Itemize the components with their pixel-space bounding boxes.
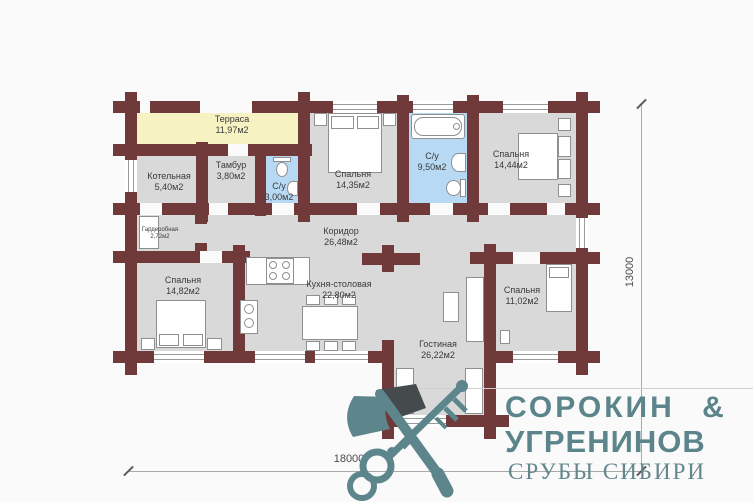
- door-opening: [357, 203, 380, 215]
- room-name: Терраса: [215, 114, 250, 124]
- room-area: 11,02м2: [505, 296, 538, 306]
- room-label-bedroom-2: Спальня 14,44м2: [493, 149, 529, 171]
- burner: [269, 272, 277, 280]
- room-area: 11,97м2: [215, 125, 248, 135]
- terrace-opening: [140, 101, 150, 113]
- key-bit: [445, 408, 457, 420]
- nightstand: [314, 113, 327, 126]
- door-opening: [140, 203, 162, 215]
- wall: [113, 144, 312, 156]
- room-area: 14,35м2: [336, 180, 370, 190]
- window: [413, 101, 453, 113]
- brand-name-line-2: УГРЕНИНОВ: [505, 424, 706, 460]
- room-area: 5,40м2: [155, 182, 184, 192]
- door-opening: [488, 203, 510, 215]
- room-area: 26,48м2: [324, 237, 358, 247]
- brand-name-line-1: СОРОКИН &: [505, 391, 727, 425]
- room-label-terrace: Терраса 11,97м2: [215, 114, 250, 136]
- room-label-kitchen: Кухня-столовая 22,80м2: [306, 279, 371, 301]
- key-bit: [454, 399, 466, 411]
- axe-and-key-logo-icon: [325, 370, 503, 502]
- room-label-living: Гостиная 26,22м2: [419, 339, 457, 361]
- pillow: [331, 116, 354, 129]
- wall: [467, 95, 479, 222]
- door-opening: [200, 251, 222, 263]
- room-label-wardrobe: Гардеробная 2,72м2: [142, 227, 178, 241]
- sink-bowl: [244, 318, 254, 328]
- toilet: [276, 162, 288, 177]
- room-name: Спальня: [504, 285, 540, 295]
- door-opening: [547, 203, 565, 215]
- room-area: 3,80м2: [217, 171, 246, 181]
- room-label-wc-small: С/у 3,00м2: [265, 181, 294, 203]
- pillow: [549, 267, 569, 278]
- pillow: [558, 136, 571, 157]
- floor-plan-image: Терраса 11,97м2 Котельная 5,40м2 Тамбур …: [0, 0, 753, 502]
- burner: [282, 272, 290, 280]
- brand-tagline: СРУБЫ СИБИРИ: [508, 459, 706, 485]
- wall: [298, 92, 310, 222]
- room-area: 14,44м2: [494, 160, 528, 170]
- nightstand: [207, 338, 222, 350]
- key-bit: [436, 418, 446, 428]
- wall: [397, 95, 409, 222]
- wall: [195, 203, 207, 224]
- chair: [306, 341, 320, 351]
- room-name: С/у: [272, 181, 286, 191]
- chair: [324, 341, 338, 351]
- room-area: 3,00м2: [265, 192, 294, 202]
- room-label-bathroom: С/у 9,50м2: [418, 151, 447, 173]
- pillow: [558, 159, 571, 179]
- room-area: 26,22м2: [421, 350, 455, 360]
- nightstand: [141, 338, 155, 350]
- burner: [269, 261, 277, 269]
- window: [503, 101, 548, 113]
- pillow: [159, 334, 179, 346]
- axe-grip: [438, 474, 447, 491]
- room-label-bedroom-3: Спальня 14,82м2: [165, 275, 201, 297]
- window: [576, 218, 588, 248]
- pillow: [183, 334, 203, 346]
- room-area: 22,80м2: [322, 290, 356, 300]
- room-label-boiler: Котельная 5,40м2: [147, 171, 191, 193]
- toilet: [446, 180, 461, 196]
- door-opening: [513, 252, 540, 264]
- dining-table: [302, 306, 358, 340]
- drain: [453, 123, 460, 130]
- room-name: Спальня: [165, 275, 201, 285]
- room-label-bedroom-4: Спальня 11,02м2: [504, 285, 540, 307]
- window: [513, 351, 558, 363]
- window: [315, 351, 368, 363]
- room-label-tambour: Тамбур 3,80м2: [216, 160, 247, 182]
- key-collar: [387, 447, 397, 457]
- burner: [282, 261, 290, 269]
- room-name: Гостиная: [419, 339, 457, 349]
- terrace-opening: [200, 101, 252, 113]
- nightstand: [383, 113, 396, 126]
- room-name: С/у: [425, 151, 439, 161]
- door-opening: [430, 203, 453, 215]
- window: [333, 101, 377, 113]
- sink: [451, 153, 466, 172]
- room-area: 9,50м2: [418, 162, 447, 172]
- room-label-corridor: Коридор 26,48м2: [323, 226, 359, 248]
- chair: [342, 341, 356, 351]
- window: [125, 160, 137, 192]
- room-name: Кухня-столовая: [306, 279, 371, 289]
- room-name: Коридор: [323, 226, 359, 236]
- door-opening: [272, 203, 294, 215]
- room-name: Гардеробная: [142, 227, 178, 233]
- nightstand: [558, 184, 571, 197]
- coffee-table: [443, 292, 459, 322]
- door-opening: [228, 144, 248, 156]
- room-area: 2,72м2: [150, 234, 169, 240]
- sink-bowl: [244, 304, 254, 314]
- nightstand: [500, 330, 510, 344]
- room-name: Спальня: [493, 149, 529, 159]
- room-name: Тамбур: [216, 160, 247, 170]
- room-name: Котельная: [147, 171, 191, 181]
- pillow: [357, 116, 379, 129]
- dimension-height: 13000: [624, 257, 636, 288]
- wall: [125, 92, 137, 375]
- room-label-bedroom-1: Спальня 14,35м2: [335, 169, 371, 191]
- key-tip: [456, 380, 468, 392]
- nightstand: [558, 118, 571, 131]
- room-name: Спальня: [335, 169, 371, 179]
- wall: [382, 245, 394, 272]
- room-area: 14,82м2: [166, 286, 200, 296]
- door-opening: [209, 203, 228, 215]
- window: [255, 351, 305, 363]
- cabinet: [466, 277, 484, 342]
- key-ring: [350, 474, 374, 498]
- window: [154, 351, 204, 363]
